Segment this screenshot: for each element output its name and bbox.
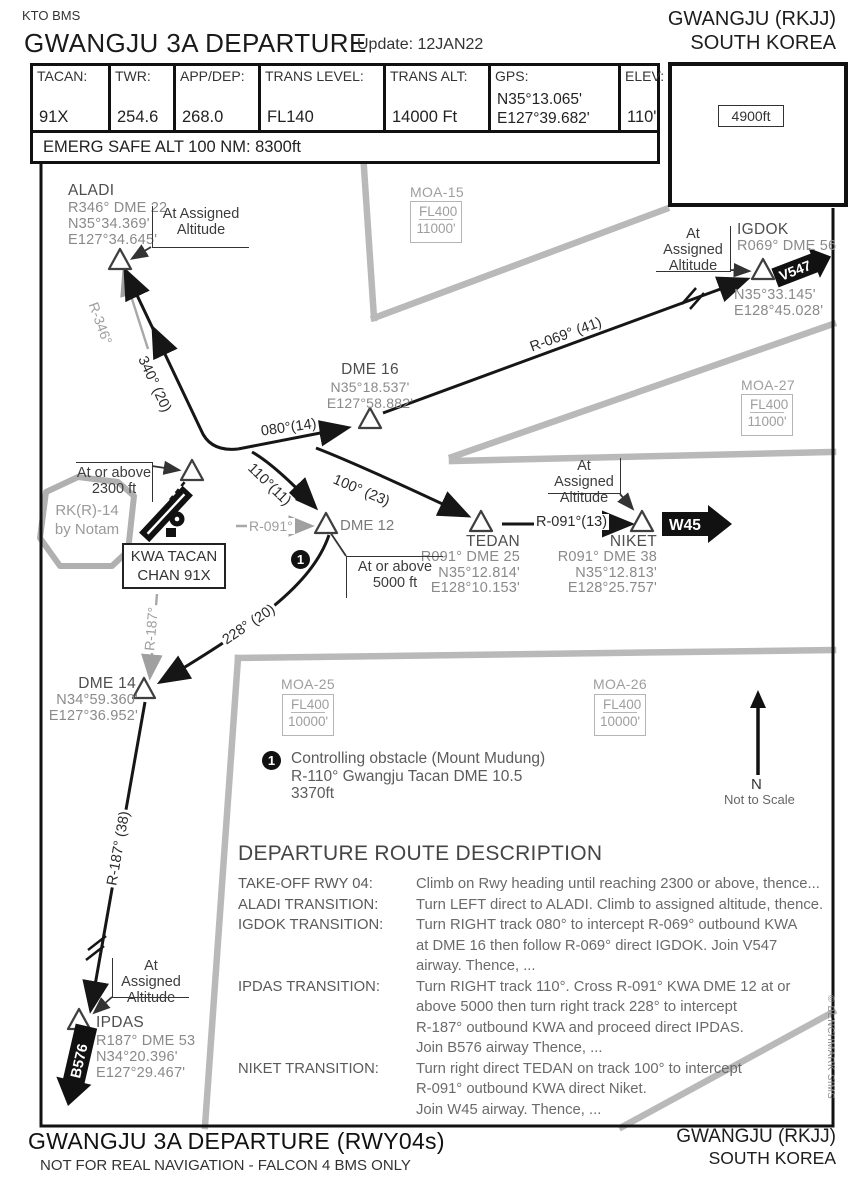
chart-title: GWANGJU 3A DEPARTURE	[24, 28, 367, 59]
moa15-upper-limit: FL400	[419, 204, 453, 220]
airway-badge-w45: W45	[662, 505, 732, 543]
moa26-label: MOA-26	[593, 676, 647, 692]
waypoint-triangle-dme12	[315, 513, 337, 533]
waypoint-label-igdok: IGDOK	[737, 221, 788, 239]
track-r069-to-igdok	[383, 280, 745, 413]
moa25-label: MOA-25	[281, 676, 335, 692]
route-item-niket-text: Turn right direct TEDAN on track 100° to…	[416, 1059, 830, 1121]
leader-ipdas-altitude	[95, 997, 112, 1012]
update-date: Update: 12JAN22	[357, 36, 483, 54]
route-item-aladi-text: Turn LEFT direct to ALADI. Climb to assi…	[416, 895, 830, 916]
appdep-value: 268.0	[182, 108, 223, 127]
waypoint-data-ipdas: R187° DME 53 N34°20.396' E127°29.467'	[96, 1033, 195, 1081]
moa15-left-boundary	[362, 138, 374, 318]
moa27-box: FL400 11000'	[741, 394, 793, 436]
tacan-label: TACAN:	[37, 68, 87, 84]
route-item-aladi: ALADI TRANSITION: Turn LEFT direct to AL…	[238, 895, 830, 916]
appdep-label: APP/DEP:	[180, 68, 245, 84]
country-header: SOUTH KOREA	[690, 32, 836, 55]
waypoint-triangle-dme16	[359, 408, 381, 428]
route-item-niket-label: NIKET TRANSITION:	[238, 1059, 408, 1121]
waypoint-ident-igdok: R069° DME 56	[737, 238, 836, 254]
route-item-niket: NIKET TRANSITION: Turn right direct TEDA…	[238, 1059, 830, 1121]
not-to-scale-label: Not to Scale	[724, 792, 795, 807]
emergency-safe-altitude-text: EMERG SAFE ALT 100 NM: 8300ft	[43, 138, 301, 157]
moa25-left-boundary	[205, 658, 238, 1126]
copyright-vertical: © BENCHMARK SIMS	[825, 995, 836, 1099]
route-item-takeoff: TAKE-OFF RWY 04: Climb on Rwy heading un…	[238, 874, 830, 895]
moa25-upper-limit: FL400	[291, 697, 325, 713]
waypoint-triangle-igdok	[752, 259, 774, 279]
constraint-ipdas-at-assigned: At Assigned Altitude	[112, 958, 189, 998]
sid-chart-page: V547 W45 B576 MSA 25 Nm	[0, 0, 850, 1181]
transalt-label: TRANS ALT:	[390, 68, 468, 84]
obstacle-note-text: Controlling obstacle (Mount Mudung) R-11…	[291, 750, 545, 803]
gps-label: GPS:	[495, 68, 528, 84]
restricted-area-rk14-label: RK(R)-14 by Notam	[46, 501, 128, 539]
route-item-ipdas-text: Turn RIGHT track 110°. Cross R-091° KWA …	[416, 977, 830, 1059]
issuer-label: KTO BMS	[22, 8, 80, 23]
north-arrow	[750, 690, 766, 775]
leader-2300	[152, 466, 178, 470]
route-item-igdok-text: Turn RIGHT track 080° to intercept R-069…	[416, 915, 830, 977]
moa15-label: MOA-15	[410, 184, 464, 200]
track-label-r091-13: R-091°(13)	[534, 514, 609, 530]
route-description-title: DEPARTURE ROUTE DESCRIPTION	[238, 842, 830, 866]
airway-badge-w45-label: W45	[669, 517, 701, 534]
constraint-at-or-above-5000: At or above 5000 ft	[346, 556, 443, 598]
waypoint-triangle-2300	[181, 460, 203, 480]
emergency-safe-altitude-box: EMERG SAFE ALT 100 NM: 8300ft	[30, 133, 660, 164]
waypoint-label-dme12: DME 12	[340, 517, 394, 534]
route-item-igdok-label: IGDOK TRANSITION:	[238, 915, 408, 977]
route-item-aladi-label: ALADI TRANSITION:	[238, 895, 408, 916]
kwa-tacan-box: KWA TACAN CHAN 91X	[122, 543, 226, 589]
msa-box	[668, 62, 848, 207]
route-item-igdok: IGDOK TRANSITION: Turn RIGHT track 080° …	[238, 915, 830, 977]
info-cell-translevel: TRANS LEVEL: FL140	[258, 66, 383, 130]
waypoint-data-niket: R091° DME 38 N35°12.813' E128°25.757'	[555, 550, 657, 597]
moa25-lower-limit: 10000'	[283, 714, 333, 729]
obstacle-marker-map: 1	[291, 550, 310, 569]
route-item-ipdas-label: IPDAS TRANSITION:	[238, 977, 408, 1059]
waypoint-label-aladi: ALADI	[68, 182, 114, 200]
constraint-igdok-at-assigned: At Assigned Altitude	[656, 226, 731, 272]
moa15-lower-limit: 11000'	[411, 221, 461, 236]
track-to-aladi-mid-arrow	[154, 330, 162, 347]
gps-value: N35°13.065' E127°39.682'	[497, 90, 590, 128]
waypoint-coords-igdok: N35°33.145' E128°45.028'	[734, 287, 823, 319]
departure-route-description: DEPARTURE ROUTE DESCRIPTION TAKE-OFF RWY…	[238, 842, 830, 1120]
footer-airport: GWANGJU (RKJJ)	[676, 1126, 836, 1148]
twr-label: TWR:	[115, 68, 151, 84]
footer-title: GWANGJU 3A DEPARTURE (RWY04s)	[28, 1128, 445, 1155]
moa25-box: FL400 10000'	[282, 694, 334, 736]
info-cell-tacan: TACAN: 91X	[33, 66, 108, 130]
frequency-info-table: TACAN: 91X TWR: 254.6 APP/DEP: 268.0 TRA…	[30, 63, 660, 133]
constraint-aladi-at-assigned: At Assigned Altitude	[152, 206, 249, 248]
moa27-upper-limit: FL400	[750, 397, 784, 413]
tacan-value: 91X	[39, 108, 68, 127]
elev-label: ELEV:	[625, 68, 664, 84]
moa26-upper-limit: FL400	[603, 697, 637, 713]
footer-country: SOUTH KOREA	[709, 1148, 836, 1169]
moa25-top-boundary	[238, 650, 833, 658]
waypoint-label-dme14: DME 14	[58, 675, 136, 693]
leader-5000	[330, 532, 346, 556]
moa15-box: FL400 11000'	[410, 201, 462, 243]
airport-name-header: GWANGJU (RKJJ)	[668, 8, 836, 31]
info-cell-gps: GPS: N35°13.065' E127°39.682'	[488, 66, 618, 130]
waypoint-triangle-aladi	[109, 249, 131, 269]
constraint-niket-at-assigned: At Assigned Altitude	[548, 458, 621, 494]
north-label: N	[751, 776, 762, 793]
info-cell-elev: ELEV: 110'	[618, 66, 657, 130]
waypoint-coords-dme16: N35°18.537' E127°58.882'	[318, 379, 422, 411]
info-cell-twr: TWR: 254.6	[108, 66, 173, 130]
msa-altitude: 4900ft	[718, 105, 784, 127]
moa26-box: FL400 10000'	[594, 694, 646, 736]
obstacle-marker-note: 1	[262, 751, 281, 770]
leader-igdok-altitude	[730, 270, 748, 271]
waypoint-coords-dme14: N34°59.360' E127°36.952'	[46, 692, 138, 724]
route-item-ipdas: IPDAS TRANSITION: Turn RIGHT track 110°.…	[238, 977, 830, 1059]
waypoint-label-ipdas: IPDAS	[96, 1014, 144, 1032]
constraint-at-or-above-2300: At or above 2300 ft	[76, 462, 153, 502]
waypoint-triangle-niket	[631, 511, 653, 531]
moa27-lower-limit: 11000'	[742, 414, 792, 429]
translevel-value: FL140	[267, 108, 314, 127]
translevel-label: TRANS LEVEL:	[265, 68, 364, 84]
info-cell-transalt: TRANS ALT: 14000 Ft	[383, 66, 488, 130]
twr-value: 254.6	[117, 108, 158, 127]
moa26-lower-limit: 10000'	[595, 714, 645, 729]
route-item-takeoff-text: Climb on Rwy heading until reaching 2300…	[416, 874, 830, 895]
waypoint-label-dme16: DME 16	[330, 361, 410, 379]
moa27-label: MOA-27	[741, 377, 795, 393]
route-item-takeoff-label: TAKE-OFF RWY 04:	[238, 874, 408, 895]
info-cell-appdep: APP/DEP: 268.0	[173, 66, 258, 130]
transalt-value: 14000 Ft	[392, 108, 457, 127]
waypoint-triangle-tedan	[470, 511, 492, 531]
elev-value: 110'	[627, 108, 656, 127]
moa27-lower-boundary	[452, 452, 833, 461]
radial-label-r091: R-091°	[247, 518, 295, 534]
leader-niket-altitude	[620, 494, 632, 508]
leader-aladi-altitude	[133, 247, 151, 258]
footer-disclaimer: NOT FOR REAL NAVIGATION - FALCON 4 BMS O…	[40, 1157, 411, 1174]
